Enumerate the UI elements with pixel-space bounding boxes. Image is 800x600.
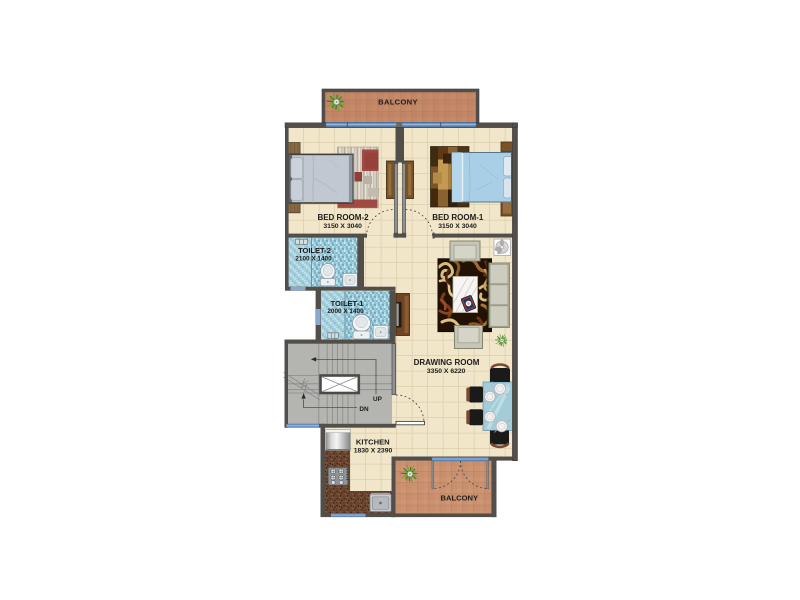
svg-text:2100 X 1400: 2100 X 1400 bbox=[295, 255, 332, 262]
svg-text:1830 X 2390: 1830 X 2390 bbox=[354, 448, 393, 455]
svg-text:2000 X 1400: 2000 X 1400 bbox=[327, 308, 364, 315]
svg-text:TOILET-1: TOILET-1 bbox=[331, 299, 364, 308]
svg-text:UP: UP bbox=[373, 396, 383, 403]
svg-text:BALCONY: BALCONY bbox=[378, 97, 418, 106]
svg-text:KITCHEN: KITCHEN bbox=[356, 437, 390, 446]
svg-text:3150 X 3040: 3150 X 3040 bbox=[323, 223, 362, 230]
svg-text:BED ROOM-2: BED ROOM-2 bbox=[317, 213, 369, 222]
svg-text:BALCONY: BALCONY bbox=[441, 493, 479, 502]
svg-text:BED ROOM-1: BED ROOM-1 bbox=[432, 213, 484, 222]
svg-text:3150 X 3040: 3150 X 3040 bbox=[438, 223, 477, 230]
svg-text:DN: DN bbox=[359, 406, 369, 413]
svg-text:DRAWING ROOM: DRAWING ROOM bbox=[414, 358, 480, 367]
svg-text:3350 X 6220: 3350 X 6220 bbox=[427, 368, 466, 375]
svg-text:TOILET-2: TOILET-2 bbox=[298, 246, 331, 255]
